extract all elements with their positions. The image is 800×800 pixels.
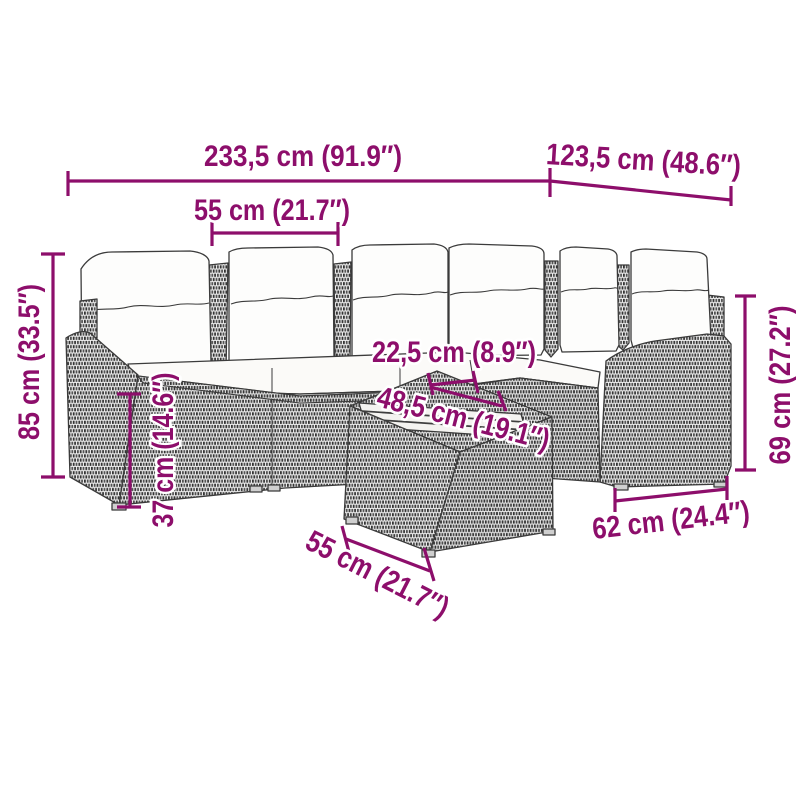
svg-text:69 cm (27.2″): 69 cm (27.2″) [764, 306, 797, 465]
svg-text:85 cm (33.5″): 85 cm (33.5″) [13, 284, 46, 440]
svg-text:37 cm (14.6″): 37 cm (14.6″) [147, 373, 180, 528]
svg-text:233,5 cm (91.9″): 233,5 cm (91.9″) [204, 140, 402, 173]
svg-text:55 cm (21.7″): 55 cm (21.7″) [194, 194, 350, 227]
svg-text:22,5 cm (8.9″): 22,5 cm (8.9″) [372, 336, 536, 369]
